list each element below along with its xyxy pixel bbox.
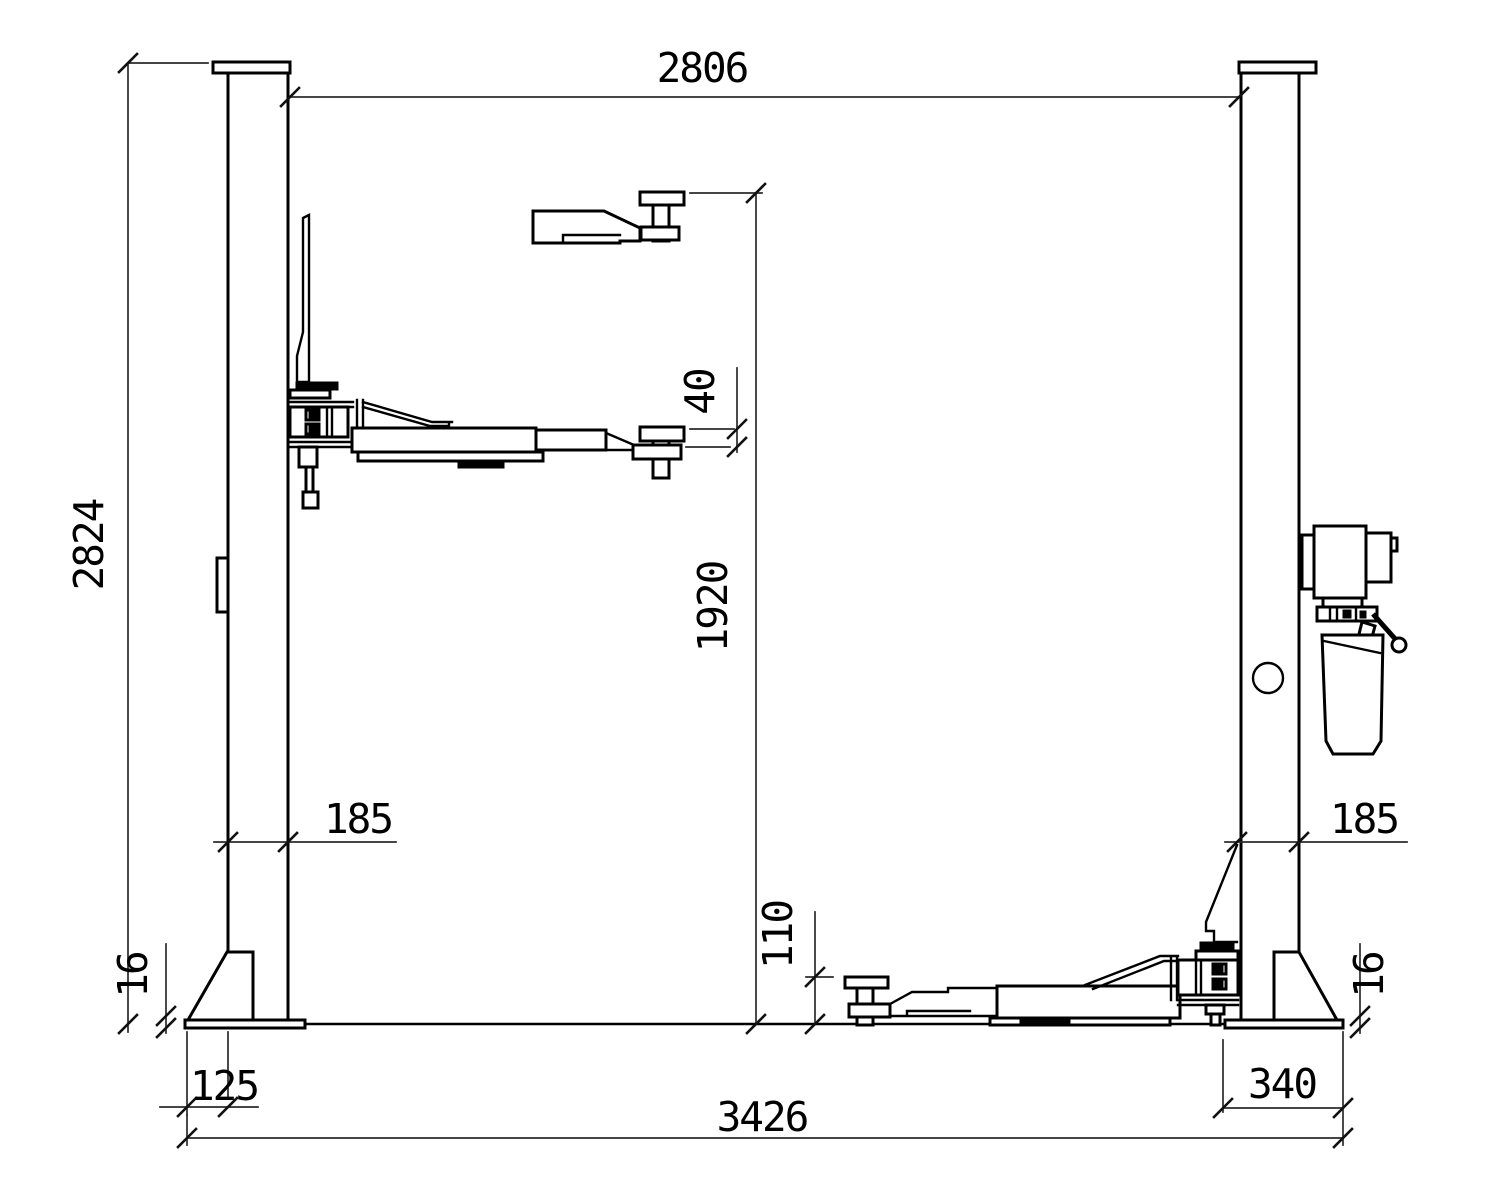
pad-flange-right — [849, 1004, 890, 1017]
dim-label-2824: 2824 — [65, 499, 113, 590]
dim-label-16-left: 16 — [109, 952, 157, 998]
dim-label-2806: 2806 — [657, 44, 748, 92]
dim-label-16-right: 16 — [1345, 952, 1393, 998]
dim-125: 125 — [160, 1032, 258, 1116]
dim-16-left: 16 — [109, 944, 175, 1037]
pad-flange — [633, 445, 681, 459]
left-arm-brace — [363, 402, 452, 430]
power-unit — [1302, 526, 1406, 754]
pad-cap — [640, 427, 684, 441]
arm-outer-tube — [352, 428, 536, 452]
lift-elevation-drawing: 2806 2824 1920 40 110 185 185 16 — [0, 0, 1500, 1200]
motor — [1314, 526, 1366, 598]
dim-3426: 3426 — [178, 1093, 1352, 1147]
dim-2824: 2824 — [65, 54, 208, 1033]
left-column-cap-plate — [213, 62, 290, 73]
pad-flange-top — [641, 227, 679, 240]
dim-label-185-right: 185 — [1330, 795, 1398, 843]
left-arm-mid — [352, 427, 684, 478]
dim-label-110: 110 — [754, 901, 802, 969]
pad-cap-right — [845, 977, 888, 988]
arm-inner-tube — [536, 430, 606, 450]
left-column — [188, 62, 290, 1020]
dim-16-right: 16 — [1345, 944, 1393, 1037]
arm-top-body — [533, 211, 640, 243]
dim-label-185-left: 185 — [324, 795, 392, 843]
right-column-cap-plate — [1239, 62, 1316, 73]
left-carriage — [290, 215, 452, 508]
left-column-cover-box — [217, 558, 228, 612]
pad-cap-top — [640, 192, 684, 205]
right-arm-lowered — [845, 956, 1180, 1025]
motor-bracket — [1302, 535, 1314, 589]
right-gusset — [1274, 952, 1337, 1020]
rubber-stop — [458, 461, 504, 468]
right-arm-brace — [1085, 956, 1178, 989]
lever-knob — [1392, 638, 1406, 652]
dim-label-40: 40 — [676, 369, 724, 415]
rubber-stop-right — [1020, 1019, 1070, 1025]
dim-label-3426: 3426 — [717, 1093, 808, 1141]
dim-340: 340 — [1214, 1032, 1352, 1145]
dim-2806: 2806 — [281, 44, 1248, 106]
dim-label-125: 125 — [190, 1062, 258, 1110]
left-gusset — [188, 952, 253, 1020]
dim-label-340: 340 — [1248, 1060, 1316, 1108]
dim-label-1920: 1920 — [689, 561, 737, 652]
dim-110: 110 — [754, 901, 833, 1033]
capacitor-box — [1366, 533, 1391, 582]
dim-40: 40 — [676, 368, 746, 456]
arm-outer-tube-right — [997, 986, 1180, 1018]
right-carriage-fin — [1206, 845, 1237, 942]
drawing-page: 2806 2824 1920 40 110 185 185 16 — [0, 0, 1500, 1200]
arm-top-position — [533, 192, 684, 243]
left-carriage-fin — [297, 215, 309, 382]
